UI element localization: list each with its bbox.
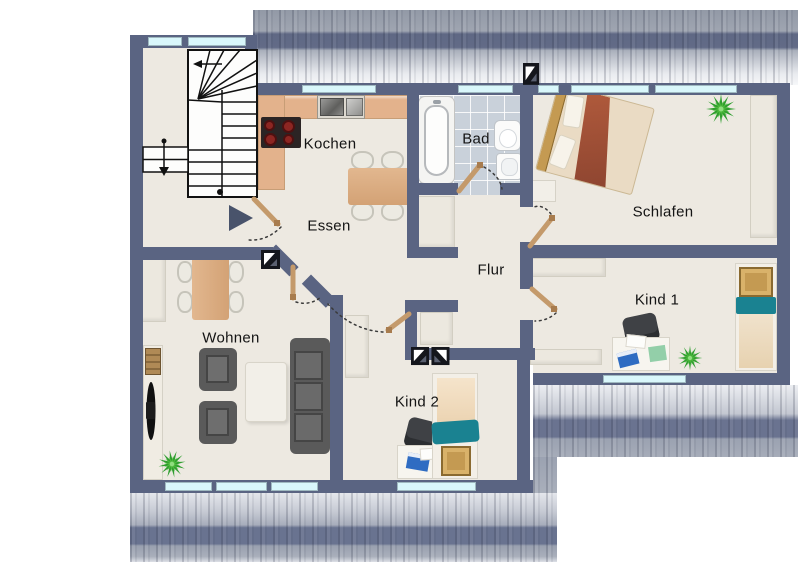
sofa-cushion	[294, 413, 323, 442]
room-label-essen: Essen	[307, 218, 350, 235]
book-stack	[145, 348, 161, 375]
floor-gap-kind1-door	[520, 289, 533, 320]
wohnen-sideboard	[140, 258, 166, 322]
wall-kind2-right	[517, 348, 530, 480]
kind1-bed-headboard	[739, 267, 773, 297]
wall-stair-kitchen	[245, 48, 257, 198]
kind2-bed-footboard	[441, 446, 471, 476]
flur-wardrobe-top	[418, 196, 455, 248]
flur-wardrobe-bottom	[420, 312, 453, 345]
kind1-desk	[612, 337, 670, 371]
room-label-flur: Flur	[477, 262, 504, 279]
window	[458, 85, 513, 93]
armchair-cushion	[206, 355, 229, 383]
window	[538, 85, 559, 93]
floor-plan: Kochen Essen Bad Schlafen Flur Kind 1 Wo…	[0, 0, 800, 565]
nightstand	[531, 180, 556, 202]
wall-bad-left	[407, 93, 419, 257]
wall-bad-bottom-b	[500, 183, 533, 195]
wall-hall-wohnen	[130, 247, 273, 260]
room-label-kind1: Kind 1	[635, 292, 679, 309]
floor-hall	[143, 48, 245, 247]
toilet-bowl	[499, 129, 517, 148]
armchair-cushion	[206, 408, 229, 436]
window	[148, 37, 182, 46]
armchair	[199, 401, 237, 444]
bathtub	[418, 96, 455, 184]
armchair	[199, 348, 237, 391]
bath-sink-basin	[501, 158, 518, 176]
window	[302, 85, 376, 93]
wall-flur-bottom	[407, 348, 535, 360]
kind1-wardrobe	[532, 258, 606, 277]
kind1-bed	[735, 263, 777, 371]
sofa-cushion	[294, 351, 323, 380]
stove	[261, 117, 301, 148]
room-label-wohnen: Wohnen	[202, 330, 259, 347]
wall-outer-right	[777, 83, 790, 385]
coffee-table	[245, 362, 287, 422]
bath-sink	[496, 153, 522, 180]
wall-wohnen-kind2	[330, 295, 343, 480]
kind1-bed-blanket	[736, 297, 776, 314]
wall-schlafen-kind1	[533, 245, 777, 258]
wohnen-table	[192, 254, 229, 320]
bathtub-faucet	[433, 100, 441, 104]
window	[188, 37, 246, 46]
wall-flur-right-a	[520, 242, 533, 289]
roof-hatch-top	[253, 10, 798, 85]
bathtub-basin	[424, 105, 449, 176]
floor-gap-schlafen-door	[520, 207, 533, 242]
wall-bad-bottom-a	[407, 183, 458, 195]
roof-hatch-corner	[533, 457, 557, 493]
wohnen-chair	[177, 291, 193, 313]
schlafen-closet	[750, 95, 777, 238]
roof-hatch-right	[533, 385, 798, 457]
kind2-wardrobe	[345, 315, 369, 378]
kitchen-sink	[317, 95, 365, 119]
toilet	[494, 120, 521, 151]
window	[655, 85, 737, 93]
room-label-kochen: Kochen	[304, 136, 357, 153]
wohnen-chair	[177, 261, 193, 283]
stove-burner	[264, 133, 277, 146]
wohnen-chair	[228, 261, 244, 283]
bed-pillow	[562, 94, 585, 128]
kind2-bed-blanket	[431, 419, 479, 444]
stove-burner	[264, 120, 275, 131]
paper-green	[648, 345, 667, 362]
sink-basin-left	[320, 98, 344, 116]
dining-table	[348, 168, 412, 205]
window	[216, 482, 267, 491]
wall-niche1-bottom	[407, 247, 458, 258]
sofa-cushion	[294, 382, 323, 411]
window	[603, 375, 686, 383]
wall-outer-left	[130, 35, 143, 492]
room-label-bad: Bad	[462, 131, 490, 148]
wall-niche2-top	[415, 300, 458, 312]
window	[397, 482, 476, 491]
sofa	[290, 338, 330, 454]
paper-white	[625, 334, 646, 349]
window	[271, 482, 318, 491]
kind1-shelf	[530, 349, 602, 365]
wall-flur-right-b	[520, 320, 533, 360]
window	[165, 482, 212, 491]
floor-hall-doorgap	[245, 198, 257, 247]
roof-hatch-bottom	[130, 492, 557, 562]
room-label-schlafen: Schlafen	[633, 204, 694, 221]
sink-basin-right	[346, 98, 363, 116]
stove-burner	[283, 134, 294, 145]
kind1-bed-mattress	[739, 314, 773, 368]
window	[571, 85, 649, 93]
stove-burner	[282, 120, 295, 133]
room-label-kind2: Kind 2	[395, 394, 439, 411]
kind2-bed	[432, 373, 478, 479]
paper-blue	[616, 349, 639, 368]
wohnen-chair	[228, 291, 244, 313]
